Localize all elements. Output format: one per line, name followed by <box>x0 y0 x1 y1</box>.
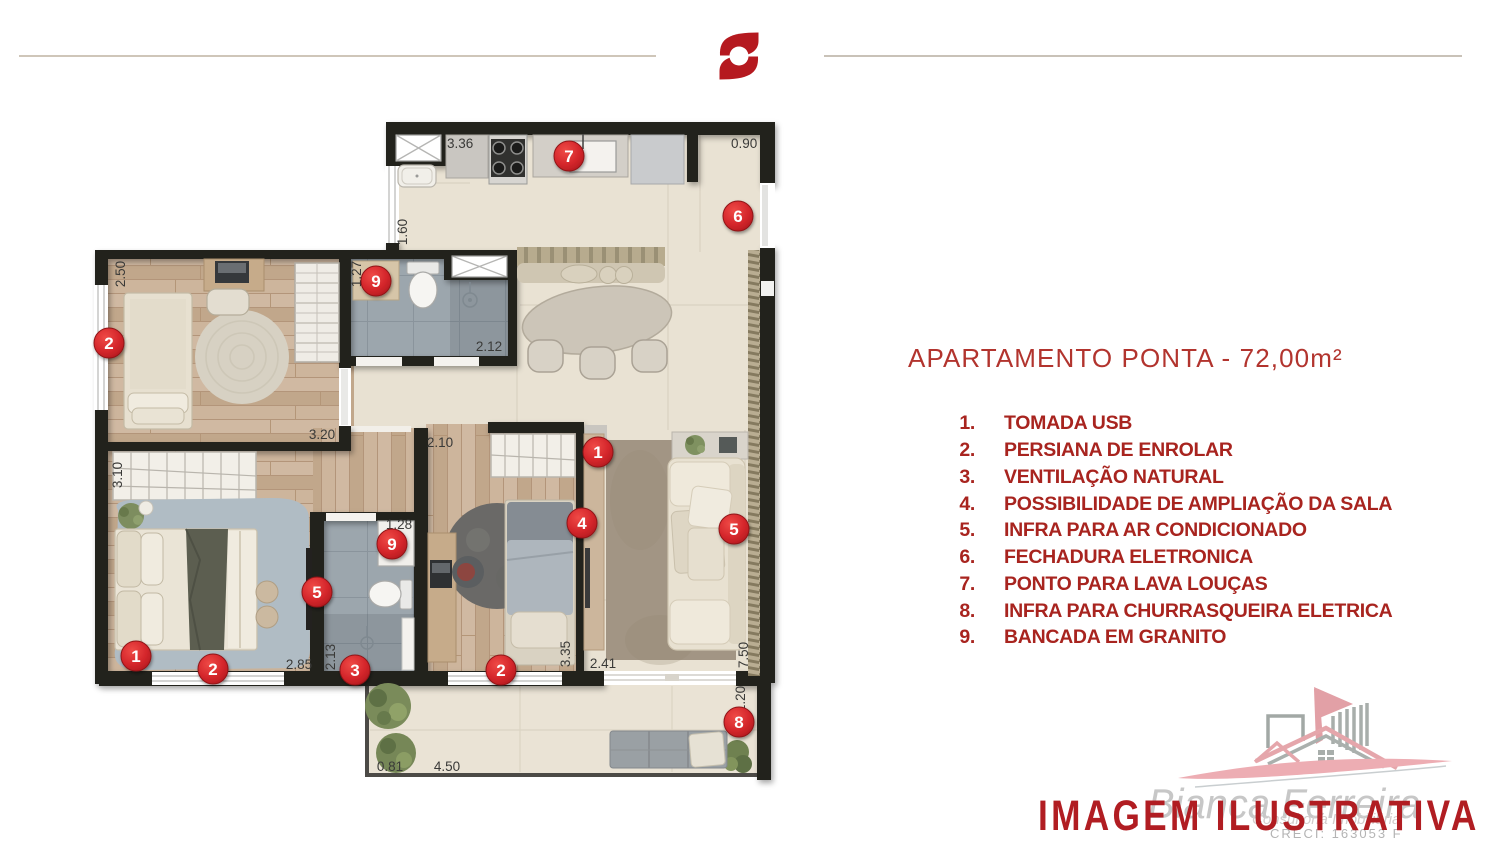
svg-text:3.: 3. <box>959 466 975 488</box>
svg-text:5: 5 <box>312 583 321 602</box>
svg-text:2: 2 <box>496 661 505 680</box>
svg-text:1: 1 <box>593 443 602 462</box>
svg-text:6.: 6. <box>959 546 975 568</box>
svg-text:7: 7 <box>564 147 573 166</box>
svg-text:3.36: 3.36 <box>447 136 473 151</box>
svg-text:4.: 4. <box>959 493 975 515</box>
svg-text:7.: 7. <box>959 573 975 595</box>
svg-text:8.: 8. <box>959 600 975 622</box>
svg-text:PONTO PARA LAVA LOUÇAS: PONTO PARA LAVA LOUÇAS <box>1004 573 1268 595</box>
svg-text:3.35: 3.35 <box>558 641 573 667</box>
svg-text:POSSIBILIDADE DE AMPLIAÇÃO DA: POSSIBILIDADE DE AMPLIAÇÃO DA SALA <box>1004 492 1392 515</box>
svg-text:3.20: 3.20 <box>309 427 335 442</box>
svg-text:TOMADA USB: TOMADA USB <box>1004 412 1132 434</box>
svg-text:9: 9 <box>371 272 380 291</box>
svg-text:IMAGEM ILUSTRATIVA: IMAGEM ILUSTRATIVA <box>1038 792 1480 840</box>
svg-text:9: 9 <box>387 535 396 554</box>
svg-text:2.13: 2.13 <box>323 644 338 670</box>
svg-text:7.50: 7.50 <box>736 642 751 668</box>
svg-text:BANCADA EM GRANITO: BANCADA EM GRANITO <box>1004 626 1226 648</box>
svg-text:PERSIANA DE ENROLAR: PERSIANA DE ENROLAR <box>1004 439 1233 461</box>
svg-text:2.85: 2.85 <box>286 657 312 672</box>
svg-text:4.50: 4.50 <box>434 759 460 774</box>
svg-text:VENTILAÇÃO NATURAL: VENTILAÇÃO NATURAL <box>1004 465 1224 488</box>
svg-text:5.: 5. <box>959 519 975 541</box>
svg-text:3.10: 3.10 <box>110 462 125 488</box>
svg-text:1.: 1. <box>959 412 975 434</box>
svg-text:1.60: 1.60 <box>395 219 410 245</box>
svg-text:2.12: 2.12 <box>476 339 502 354</box>
svg-text:APARTAMENTO PONTA - 72,00m²: APARTAMENTO PONTA - 72,00m² <box>908 343 1343 373</box>
svg-text:3: 3 <box>350 661 359 680</box>
svg-text:8: 8 <box>734 713 743 732</box>
svg-text:2.: 2. <box>959 439 975 461</box>
svg-text:2: 2 <box>208 660 217 679</box>
svg-text:2.50: 2.50 <box>113 261 128 287</box>
svg-text:0.81: 0.81 <box>377 759 403 774</box>
svg-text:5: 5 <box>729 520 738 539</box>
svg-text:INFRA PARA CHURRASQUEIRA ELETR: INFRA PARA CHURRASQUEIRA ELETRICA <box>1004 600 1393 622</box>
svg-text:9.: 9. <box>959 626 975 648</box>
svg-text:INFRA PARA AR CONDICIONADO: INFRA PARA AR CONDICIONADO <box>1004 519 1307 541</box>
svg-text:1: 1 <box>131 647 140 666</box>
svg-text:0.90: 0.90 <box>731 136 757 151</box>
svg-text:2.10: 2.10 <box>427 435 453 450</box>
svg-text:2.41: 2.41 <box>590 656 616 671</box>
svg-text:2: 2 <box>104 334 113 353</box>
svg-text:4: 4 <box>577 514 587 533</box>
svg-text:6: 6 <box>733 207 742 226</box>
svg-text:FECHADURA ELETRONICA: FECHADURA ELETRONICA <box>1004 546 1253 568</box>
